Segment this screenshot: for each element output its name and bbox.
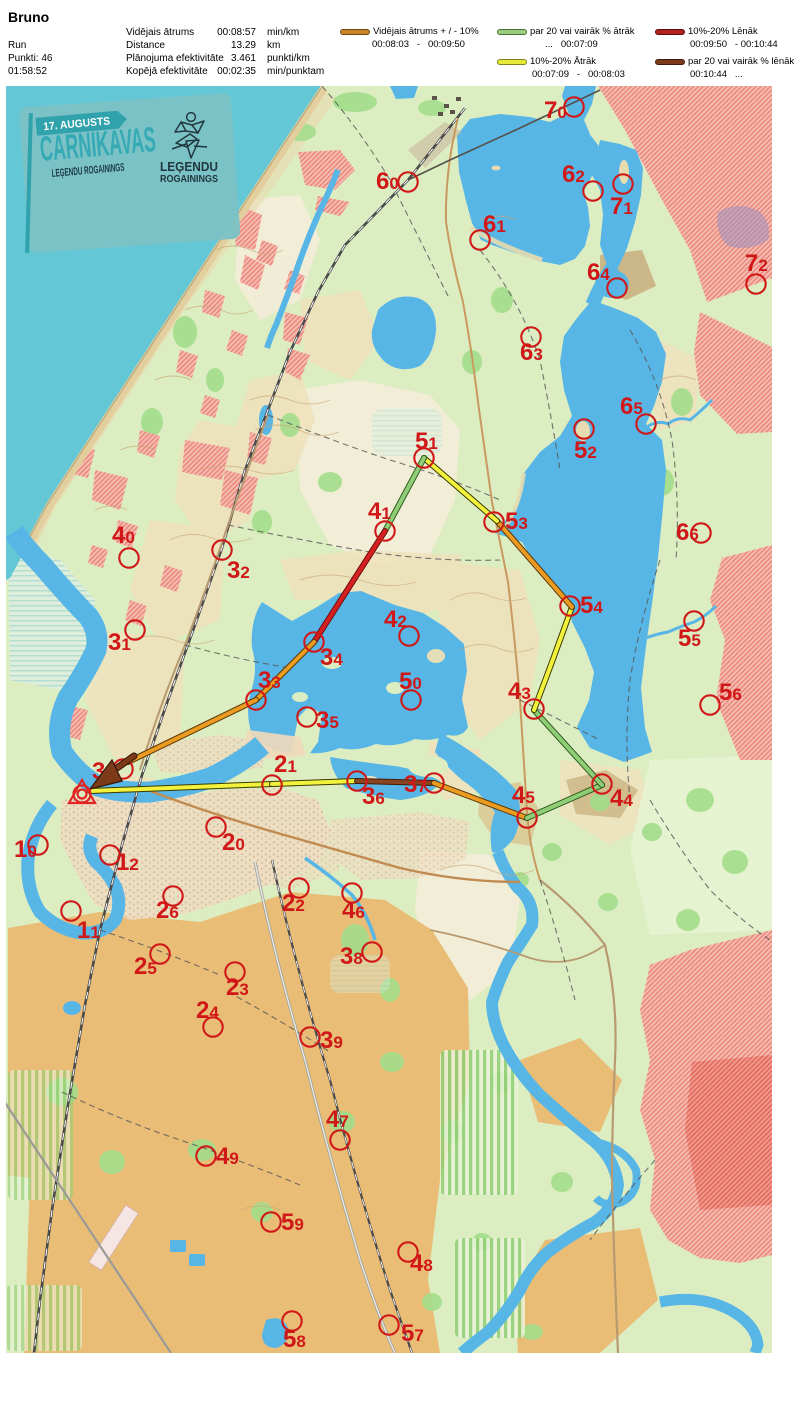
- svg-text:ROGAININGS: ROGAININGS: [160, 173, 218, 185]
- svg-text:LEĢENDU: LEĢENDU: [160, 160, 218, 174]
